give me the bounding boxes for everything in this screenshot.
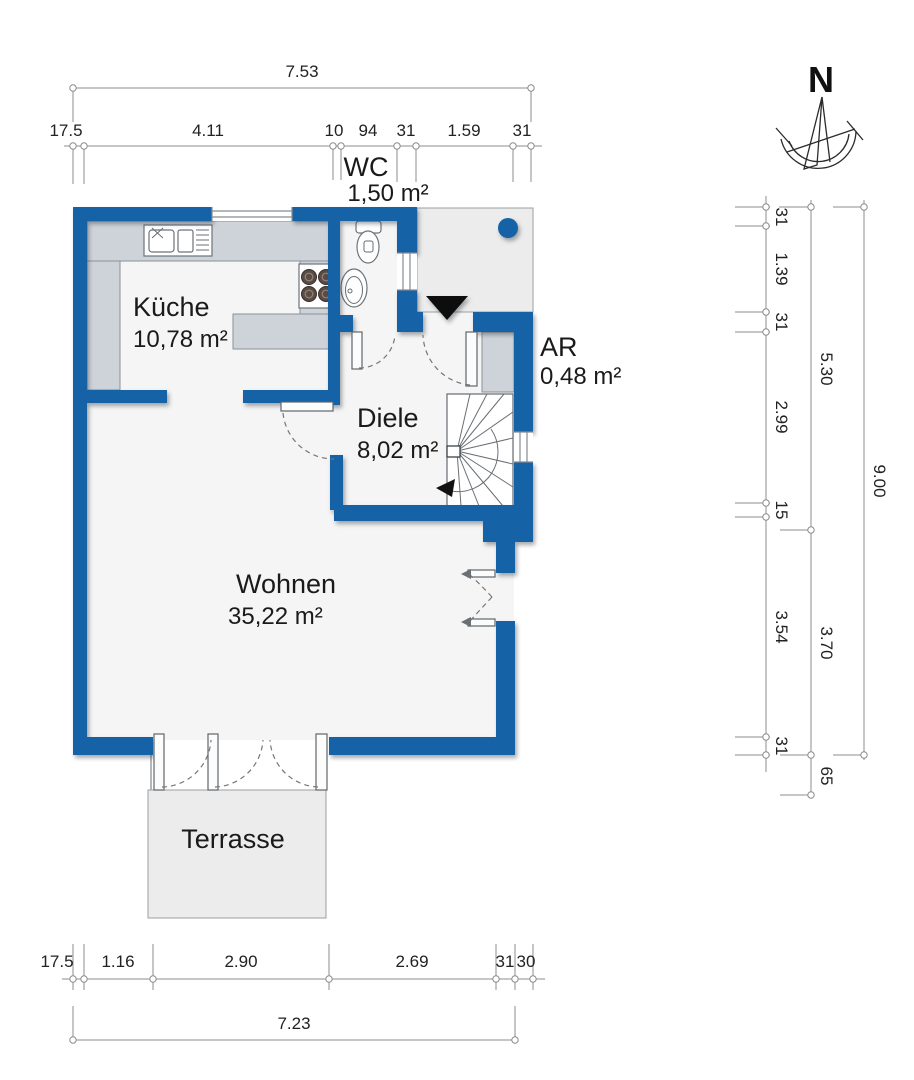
room-area-wc: 1,50 m² — [347, 180, 428, 207]
dim-right-0: 31 — [772, 208, 791, 227]
storage-floor — [482, 332, 514, 392]
sink-icon — [144, 225, 212, 256]
dim-bottom-5: 30 — [517, 952, 536, 971]
dim-right-4: 15 — [772, 501, 791, 520]
dim-bottom-3: 2.69 — [395, 952, 428, 971]
wc-window — [397, 253, 417, 290]
dim-top-3: 94 — [359, 121, 378, 140]
dim-right-1: 1.39 — [772, 252, 791, 285]
porch-column — [498, 218, 518, 238]
dim-top-6: 31 — [513, 121, 532, 140]
room-area-diele: 8,02 m² — [357, 437, 438, 464]
dim-right-overall: 9.00 — [870, 464, 889, 497]
room-label-wohnen: Wohnen — [236, 569, 336, 599]
room-area-wohnen: 35,22 m² — [228, 603, 323, 630]
compass-icon: N — [776, 59, 863, 169]
floorplan-canvas: 7.53 17.5 4.11 10 94 31 1.59 31 — [0, 0, 914, 1080]
dim-right-mid-0: 5.30 — [817, 352, 836, 385]
room-area-kueche: 10,78 m² — [133, 326, 228, 353]
dim-top-overall: 7.53 — [285, 62, 318, 81]
dim-right-mid-1: 3.70 — [817, 626, 836, 659]
room-label-ar: AR — [540, 332, 578, 362]
dim-top-1: 4.11 — [192, 121, 224, 140]
dimensions-top: 7.53 17.5 4.11 10 94 31 1.59 31 — [49, 62, 542, 184]
dim-top-2: 10 — [325, 121, 344, 140]
dim-right-5: 3.54 — [772, 610, 791, 643]
dim-bottom-overall: 7.23 — [277, 1014, 310, 1033]
terrace-floor — [148, 790, 326, 918]
room-label-terrasse: Terrasse — [181, 824, 285, 854]
room-area-ar: 0,48 m² — [540, 363, 621, 390]
dimensions-bottom: 17.5 1.16 2.90 2.69 31 30 7.23 — [40, 944, 545, 1043]
dim-bottom-2: 2.90 — [224, 952, 257, 971]
dim-top-5: 1.59 — [447, 121, 480, 140]
dim-bottom-1: 1.16 — [101, 952, 134, 971]
toilet-icon — [356, 221, 381, 263]
stair-window — [514, 432, 533, 462]
washbasin-icon — [341, 269, 367, 307]
kitchen-window — [212, 207, 292, 221]
dim-right-mid-2: 65 — [817, 767, 836, 786]
dim-top-0: 17.5 — [49, 121, 82, 140]
stairs-icon — [436, 394, 513, 506]
dim-right-3: 2.99 — [772, 400, 791, 433]
dim-right-6: 31 — [772, 737, 791, 756]
room-label-diele: Diele — [357, 403, 419, 433]
dimensions-right: 31 1.39 31 2.99 15 3.54 31 5.30 3.70 65 … — [735, 196, 889, 798]
room-label-kueche: Küche — [133, 292, 210, 322]
dim-bottom-0: 17.5 — [40, 952, 73, 971]
terrace-doors — [154, 734, 327, 790]
dim-right-2: 31 — [772, 313, 791, 332]
compass-north-label: N — [808, 59, 834, 100]
room-label-wc: WC — [344, 152, 389, 182]
dim-top-4: 31 — [397, 121, 416, 140]
dim-bottom-4: 31 — [496, 952, 515, 971]
